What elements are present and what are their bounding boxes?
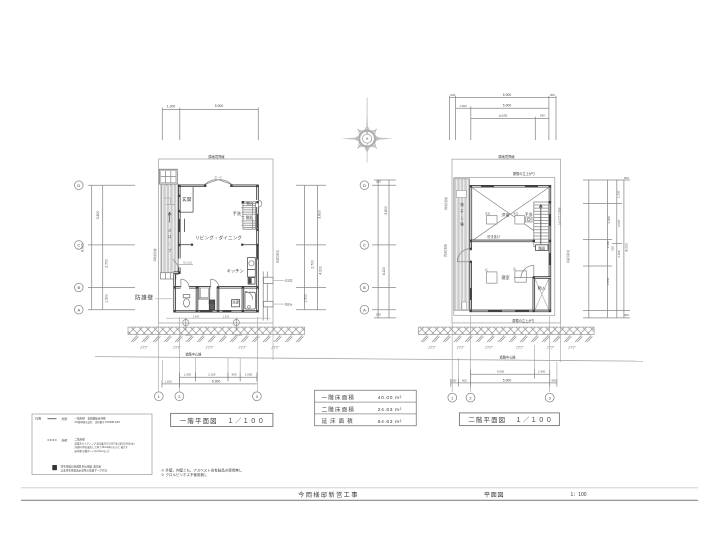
svg-text:600: 600 bbox=[462, 378, 467, 382]
svg-text:4.070: 4.070 bbox=[499, 114, 508, 118]
svg-text:4.200: 4.200 bbox=[319, 266, 323, 275]
svg-text:1.820: 1.820 bbox=[223, 314, 230, 318]
svg-text:道路中心線: 道路中心線 bbox=[500, 355, 517, 360]
svg-text:40.00 m²: 40.00 m² bbox=[378, 395, 402, 401]
svg-text:プ: プ bbox=[168, 248, 172, 253]
svg-text:200: 200 bbox=[376, 313, 381, 317]
svg-text:屋根の立上がり: 屋根の立上がり bbox=[558, 207, 562, 226]
svg-text:64.63 m²: 64.63 m² bbox=[378, 419, 402, 425]
svg-text:洗濯: 洗濯 bbox=[232, 300, 239, 305]
svg-text:ロ: ロ bbox=[168, 235, 172, 239]
svg-text:隣地境界線: 隣地境界線 bbox=[499, 154, 516, 159]
svg-text:防護壁: 防護壁 bbox=[135, 293, 154, 301]
svg-text:｜: ｜ bbox=[168, 241, 172, 246]
svg-text:給湯器: 給湯器 bbox=[285, 279, 293, 283]
svg-text:※ 外壁、内壁とも、アスベスト含有製品の使用無し: ※ 外壁、内壁とも、アスベスト含有製品の使用無し bbox=[161, 467, 243, 472]
svg-text:屋根の立上がり: 屋根の立上がり bbox=[512, 318, 534, 323]
svg-text:屋内側 石膏ボード(12.5mm以上): 屋内側 石膏ボード(12.5mm以上) bbox=[75, 449, 110, 453]
svg-text:延床面積: 延床面積 bbox=[322, 417, 356, 425]
svg-text:物入: 物入 bbox=[246, 201, 253, 206]
svg-text:二階外壁: 二階外壁 bbox=[75, 438, 86, 442]
svg-text:リビング・ダイニング: リビング・ダイニング bbox=[195, 234, 242, 241]
svg-text:階段: 階段 bbox=[246, 215, 254, 220]
svg-text:D: D bbox=[363, 183, 366, 188]
svg-text:3.800: 3.800 bbox=[318, 210, 322, 219]
svg-text:一階外壁 化粧鋼板系外壁: 一階外壁 化粧鋼板系外壁 bbox=[75, 416, 107, 420]
svg-text:1.200: 1.200 bbox=[164, 380, 172, 384]
svg-text:隣地境界線: 隣地境界線 bbox=[444, 244, 448, 257]
svg-text:手洗: 手洗 bbox=[233, 210, 242, 217]
svg-text:隣地境界線: 隣地境界線 bbox=[276, 250, 280, 263]
svg-text:1.900: 1.900 bbox=[538, 369, 546, 373]
svg-text:220: 220 bbox=[611, 246, 615, 251]
svg-text:ОО建材株式会社 認定番号 PC030B-1007: ОО建材株式会社 認定番号 PC030B-1007 bbox=[75, 420, 121, 424]
svg-text:1.500: 1.500 bbox=[105, 294, 109, 303]
svg-text:2.850: 2.850 bbox=[606, 277, 610, 285]
svg-text:B: B bbox=[363, 285, 366, 290]
svg-text:900: 900 bbox=[550, 93, 555, 97]
svg-text:外壁: 外壁 bbox=[62, 437, 68, 442]
svg-text:※ クロルピリホス不使用無し: ※ クロルピリホス不使用無し bbox=[161, 472, 208, 477]
svg-text:8.000: 8.000 bbox=[81, 243, 85, 252]
svg-text:900: 900 bbox=[450, 93, 455, 97]
svg-text:洋室: 洋室 bbox=[501, 212, 509, 218]
svg-text:4.200: 4.200 bbox=[382, 267, 386, 276]
svg-text:屋根の立上がり: 屋根の立上がり bbox=[513, 171, 535, 176]
svg-text:1.640: 1.640 bbox=[193, 314, 200, 318]
svg-text:隣地境界線: 隣地境界線 bbox=[444, 197, 448, 210]
svg-text:3.800: 3.800 bbox=[96, 211, 100, 220]
svg-text:900: 900 bbox=[624, 176, 629, 180]
svg-text:住宅金融公庫融資 耐火構造 適合品: 住宅金融公庫融資 耐火構造 適合品 bbox=[61, 464, 102, 468]
svg-text:A: A bbox=[77, 307, 80, 312]
svg-text:5.900: 5.900 bbox=[215, 104, 224, 108]
svg-text:隣地境界線: 隣地境界線 bbox=[566, 250, 570, 263]
svg-text:二階平面図: 二階平面図 bbox=[468, 415, 506, 424]
svg-text:D: D bbox=[77, 183, 80, 188]
svg-text:2.200: 2.200 bbox=[607, 216, 611, 224]
svg-text:日本住宅性能表示基準の等級サーク付き: 日本住宅性能表示基準の等級サーク付き bbox=[61, 469, 108, 473]
svg-text:キッチン: キッチン bbox=[227, 268, 244, 273]
svg-text:１／１００: １／１００ bbox=[515, 417, 553, 424]
svg-text:平面図: 平面図 bbox=[484, 492, 504, 499]
svg-text:１／１００: １／１００ bbox=[227, 418, 265, 425]
svg-text:隣地境界線: 隣地境界線 bbox=[153, 248, 157, 261]
svg-text:二階床面積: 二階床面積 bbox=[322, 405, 356, 413]
svg-text:1.000: 1.000 bbox=[459, 104, 467, 108]
svg-text:4.280: 4.280 bbox=[617, 250, 621, 258]
svg-text:1.480: 1.480 bbox=[606, 241, 610, 249]
svg-text:1.220: 1.220 bbox=[617, 190, 621, 198]
svg-text:2.700: 2.700 bbox=[311, 260, 315, 269]
svg-text:4.000: 4.000 bbox=[497, 369, 505, 373]
svg-text:A: A bbox=[363, 307, 366, 312]
svg-text:玄関: 玄関 bbox=[182, 196, 192, 203]
svg-text:机: 机 bbox=[513, 267, 516, 271]
svg-text:GL+110: GL+110 bbox=[183, 261, 193, 265]
svg-text:2.700: 2.700 bbox=[105, 259, 109, 268]
svg-text:天窓: 天窓 bbox=[485, 212, 491, 216]
svg-text:一階床面積: 一階床面積 bbox=[322, 394, 356, 402]
svg-text:手洗: 手洗 bbox=[525, 212, 533, 217]
svg-text:1.500: 1.500 bbox=[304, 294, 308, 303]
svg-text:一階平面図: 一階平面図 bbox=[180, 416, 218, 425]
svg-text:5.900: 5.900 bbox=[212, 379, 221, 383]
svg-text:2.525: 2.525 bbox=[617, 219, 621, 227]
svg-text:24.63 m²: 24.63 m² bbox=[378, 407, 402, 413]
svg-text:200: 200 bbox=[451, 378, 456, 382]
svg-text:2.100: 2.100 bbox=[208, 372, 216, 376]
svg-text:930: 930 bbox=[540, 114, 545, 118]
svg-text:天窓: 天窓 bbox=[513, 212, 519, 216]
svg-text:1.200: 1.200 bbox=[167, 105, 176, 109]
svg-text:5.900: 5.900 bbox=[503, 104, 512, 108]
svg-text:寝室: 寝室 bbox=[501, 274, 509, 280]
svg-text:1.000: 1.000 bbox=[184, 372, 192, 376]
svg-text:1：100: 1：100 bbox=[570, 492, 586, 498]
svg-text:900: 900 bbox=[551, 378, 556, 382]
svg-text:窯業系サイディング 認定番号IC-1007(全) 第12月6: 窯業系サイディング 認定番号IC-1007(全) 第12月6日(金) bbox=[75, 441, 135, 445]
svg-text:今岡様邸新営工事: 今岡様邸新営工事 bbox=[298, 491, 359, 499]
svg-text:道路中心線: 道路中心線 bbox=[185, 352, 202, 357]
svg-text:階段: 階段 bbox=[538, 245, 545, 250]
svg-text:吹き抜け: 吹き抜け bbox=[487, 234, 500, 239]
svg-text:1.600: 1.600 bbox=[245, 372, 253, 376]
svg-text:8.000: 8.000 bbox=[625, 243, 629, 252]
svg-text:3.800: 3.800 bbox=[384, 206, 388, 215]
svg-text:6.900: 6.900 bbox=[503, 93, 512, 97]
svg-text:ポーチ: ポーチ bbox=[214, 176, 222, 180]
svg-text:B: B bbox=[77, 285, 80, 290]
svg-text:物入: 物入 bbox=[538, 286, 546, 291]
svg-text:外装材 押出成形した厚さ15mm厚のものと 複合す: 外装材 押出成形した厚さ15mm厚のものと 複合す bbox=[75, 445, 129, 449]
svg-text:5.900: 5.900 bbox=[503, 378, 512, 382]
svg-text:900: 900 bbox=[232, 372, 237, 376]
svg-text:机: 机 bbox=[485, 268, 488, 272]
svg-text:隣地境界線: 隣地境界線 bbox=[209, 154, 226, 159]
svg-text:物置台: 物置台 bbox=[285, 302, 293, 306]
svg-text:凡例: 凡例 bbox=[35, 415, 41, 420]
svg-text:洗面: 洗面 bbox=[208, 299, 215, 304]
svg-text:外壁: 外壁 bbox=[62, 416, 68, 421]
svg-text:200: 200 bbox=[376, 180, 381, 184]
svg-text:ス: ス bbox=[168, 228, 172, 233]
svg-text:C: C bbox=[363, 243, 366, 248]
svg-text:900: 900 bbox=[624, 313, 629, 317]
